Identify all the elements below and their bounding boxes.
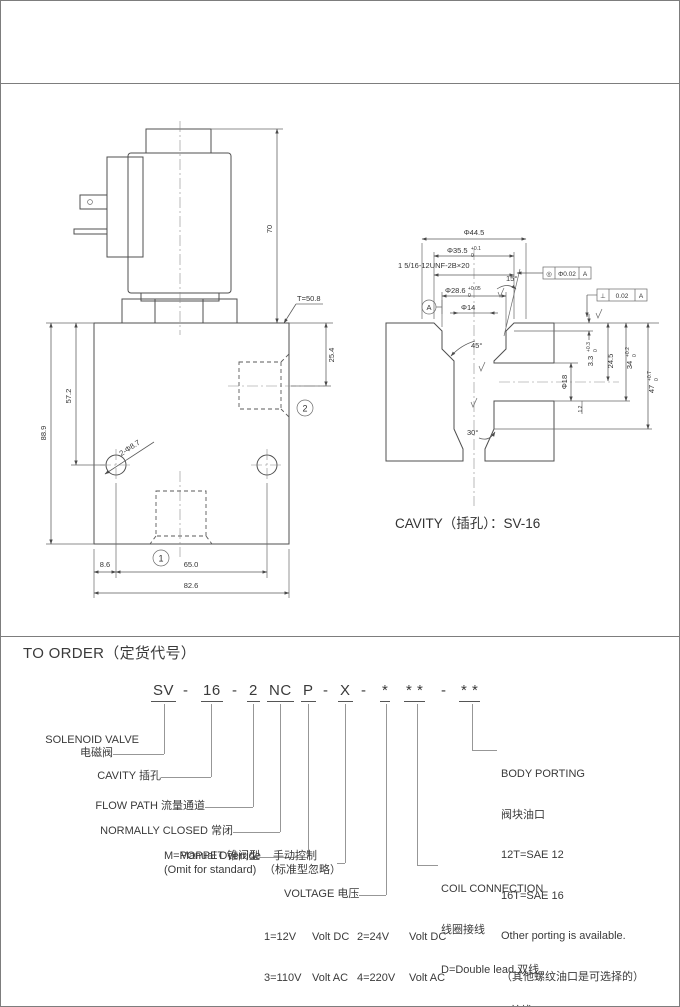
label-solenoid-valve-zh: 电磁阀 — [31, 747, 113, 760]
leader-nc-h — [233, 832, 280, 833]
leader-sv-h — [113, 754, 164, 755]
order-section: TO ORDER（定货代号） SV - 16 - 2 NC P - X - * … — [1, 1, 680, 1007]
voltage-cell: 2=24V — [357, 930, 409, 944]
leader-coil-h — [417, 865, 438, 866]
voltage-row: 3=110VVolt AC4=220VVolt AC — [264, 971, 459, 985]
body-porting-line: 阀块油口 — [501, 809, 644, 823]
code-part-x: X — [338, 682, 353, 702]
label-normally-closed: NORMALLY CLOSED 常闭 — [61, 825, 233, 838]
voltage-row: 1=12VVolt DC2=24VVolt DC — [264, 930, 459, 944]
voltage-cell: 3=110V — [264, 971, 312, 985]
code-part-voltage: * — [380, 682, 390, 702]
leader-16-h — [161, 777, 211, 778]
code-separator: - — [361, 682, 367, 699]
voltage-cell: Volt AC — [312, 971, 357, 985]
voltage-cell: 4=220V — [357, 971, 409, 985]
body-porting-line: Other porting is available. — [501, 930, 644, 944]
body-porting-line: （其他螺纹油口是可选择的） — [501, 971, 644, 985]
leader-voltage-h — [359, 895, 386, 896]
code-separator: - — [323, 682, 329, 699]
code-part-sv: SV — [151, 682, 176, 702]
code-separator: - — [232, 682, 238, 699]
code-separator: - — [183, 682, 189, 699]
code-part-nc: NC — [267, 682, 294, 702]
label-manual-override: M=Manual Override — [164, 850, 261, 863]
leader-16 — [211, 704, 212, 777]
leader-sv — [164, 704, 165, 754]
leader-porting — [472, 704, 473, 750]
leader-p — [308, 704, 309, 857]
voltage-table: 1=12VVolt DC2=24VVolt DC 3=110VVolt AC4=… — [264, 903, 459, 1007]
code-part-porting: * * — [459, 682, 480, 702]
leader-coil — [417, 704, 418, 865]
code-part-2: 2 — [247, 682, 260, 702]
label-flow-path: FLOW PATH 流量通道 — [61, 800, 205, 813]
leader-nc — [280, 704, 281, 832]
voltage-cell: 1=12V — [264, 930, 312, 944]
leader-porting-h — [472, 750, 497, 751]
body-porting-block: BODY PORTING 阀块油口 12T=SAE 12 16T=SAE 16 … — [501, 741, 644, 1007]
body-porting-line: 16T=SAE 16 — [501, 890, 644, 904]
code-part-p: P — [301, 682, 316, 702]
leader-2 — [253, 704, 254, 807]
label-manual-override-note: (Omit for standard) — [164, 864, 256, 877]
label-cavity: CAVITY 插孔 — [61, 770, 161, 783]
code-separator: - — [441, 682, 447, 699]
voltage-cell: Volt DC — [312, 930, 357, 944]
leader-voltage — [386, 704, 387, 895]
code-part-16: 16 — [201, 682, 223, 702]
label-manual-override-zh: 手动控制 — [273, 850, 317, 863]
body-porting-title: BODY PORTING — [501, 768, 644, 782]
code-part-coil: * * — [404, 682, 425, 702]
body-porting-line: 12T=SAE 12 — [501, 849, 644, 863]
datasheet-page: 2 1 70 T=50.8 25.4 88.9 — [0, 0, 680, 1007]
leader-2-h — [205, 807, 253, 808]
label-manual-override-zh-note: （标准型忽略） — [264, 864, 341, 877]
leader-x — [345, 704, 346, 863]
label-solenoid-valve: SOLENOID VALVE — [31, 734, 139, 747]
order-heading: TO ORDER（定货代号） — [23, 642, 196, 663]
voltage-heading: VOLTAGE 电压 — [284, 888, 359, 901]
